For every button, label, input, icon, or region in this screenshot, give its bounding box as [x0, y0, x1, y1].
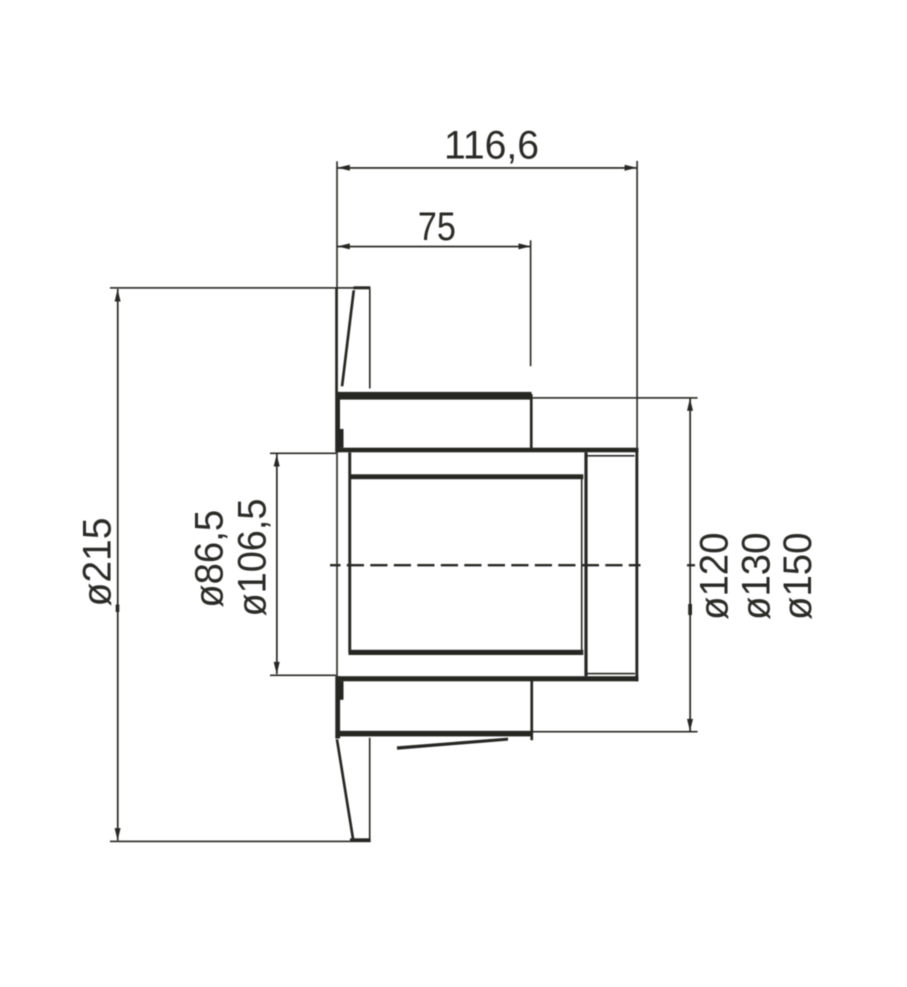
svg-text:ø86,5: ø86,5 [188, 510, 232, 608]
svg-text:ø106,5: ø106,5 [231, 499, 275, 617]
svg-text:ø215: ø215 [76, 518, 120, 607]
svg-text:ø130: ø130 [735, 533, 779, 621]
svg-text:116,6: 116,6 [444, 124, 539, 168]
svg-text:ø150: ø150 [776, 533, 820, 621]
svg-text:75: 75 [418, 205, 456, 249]
svg-text:ø120: ø120 [692, 533, 736, 621]
